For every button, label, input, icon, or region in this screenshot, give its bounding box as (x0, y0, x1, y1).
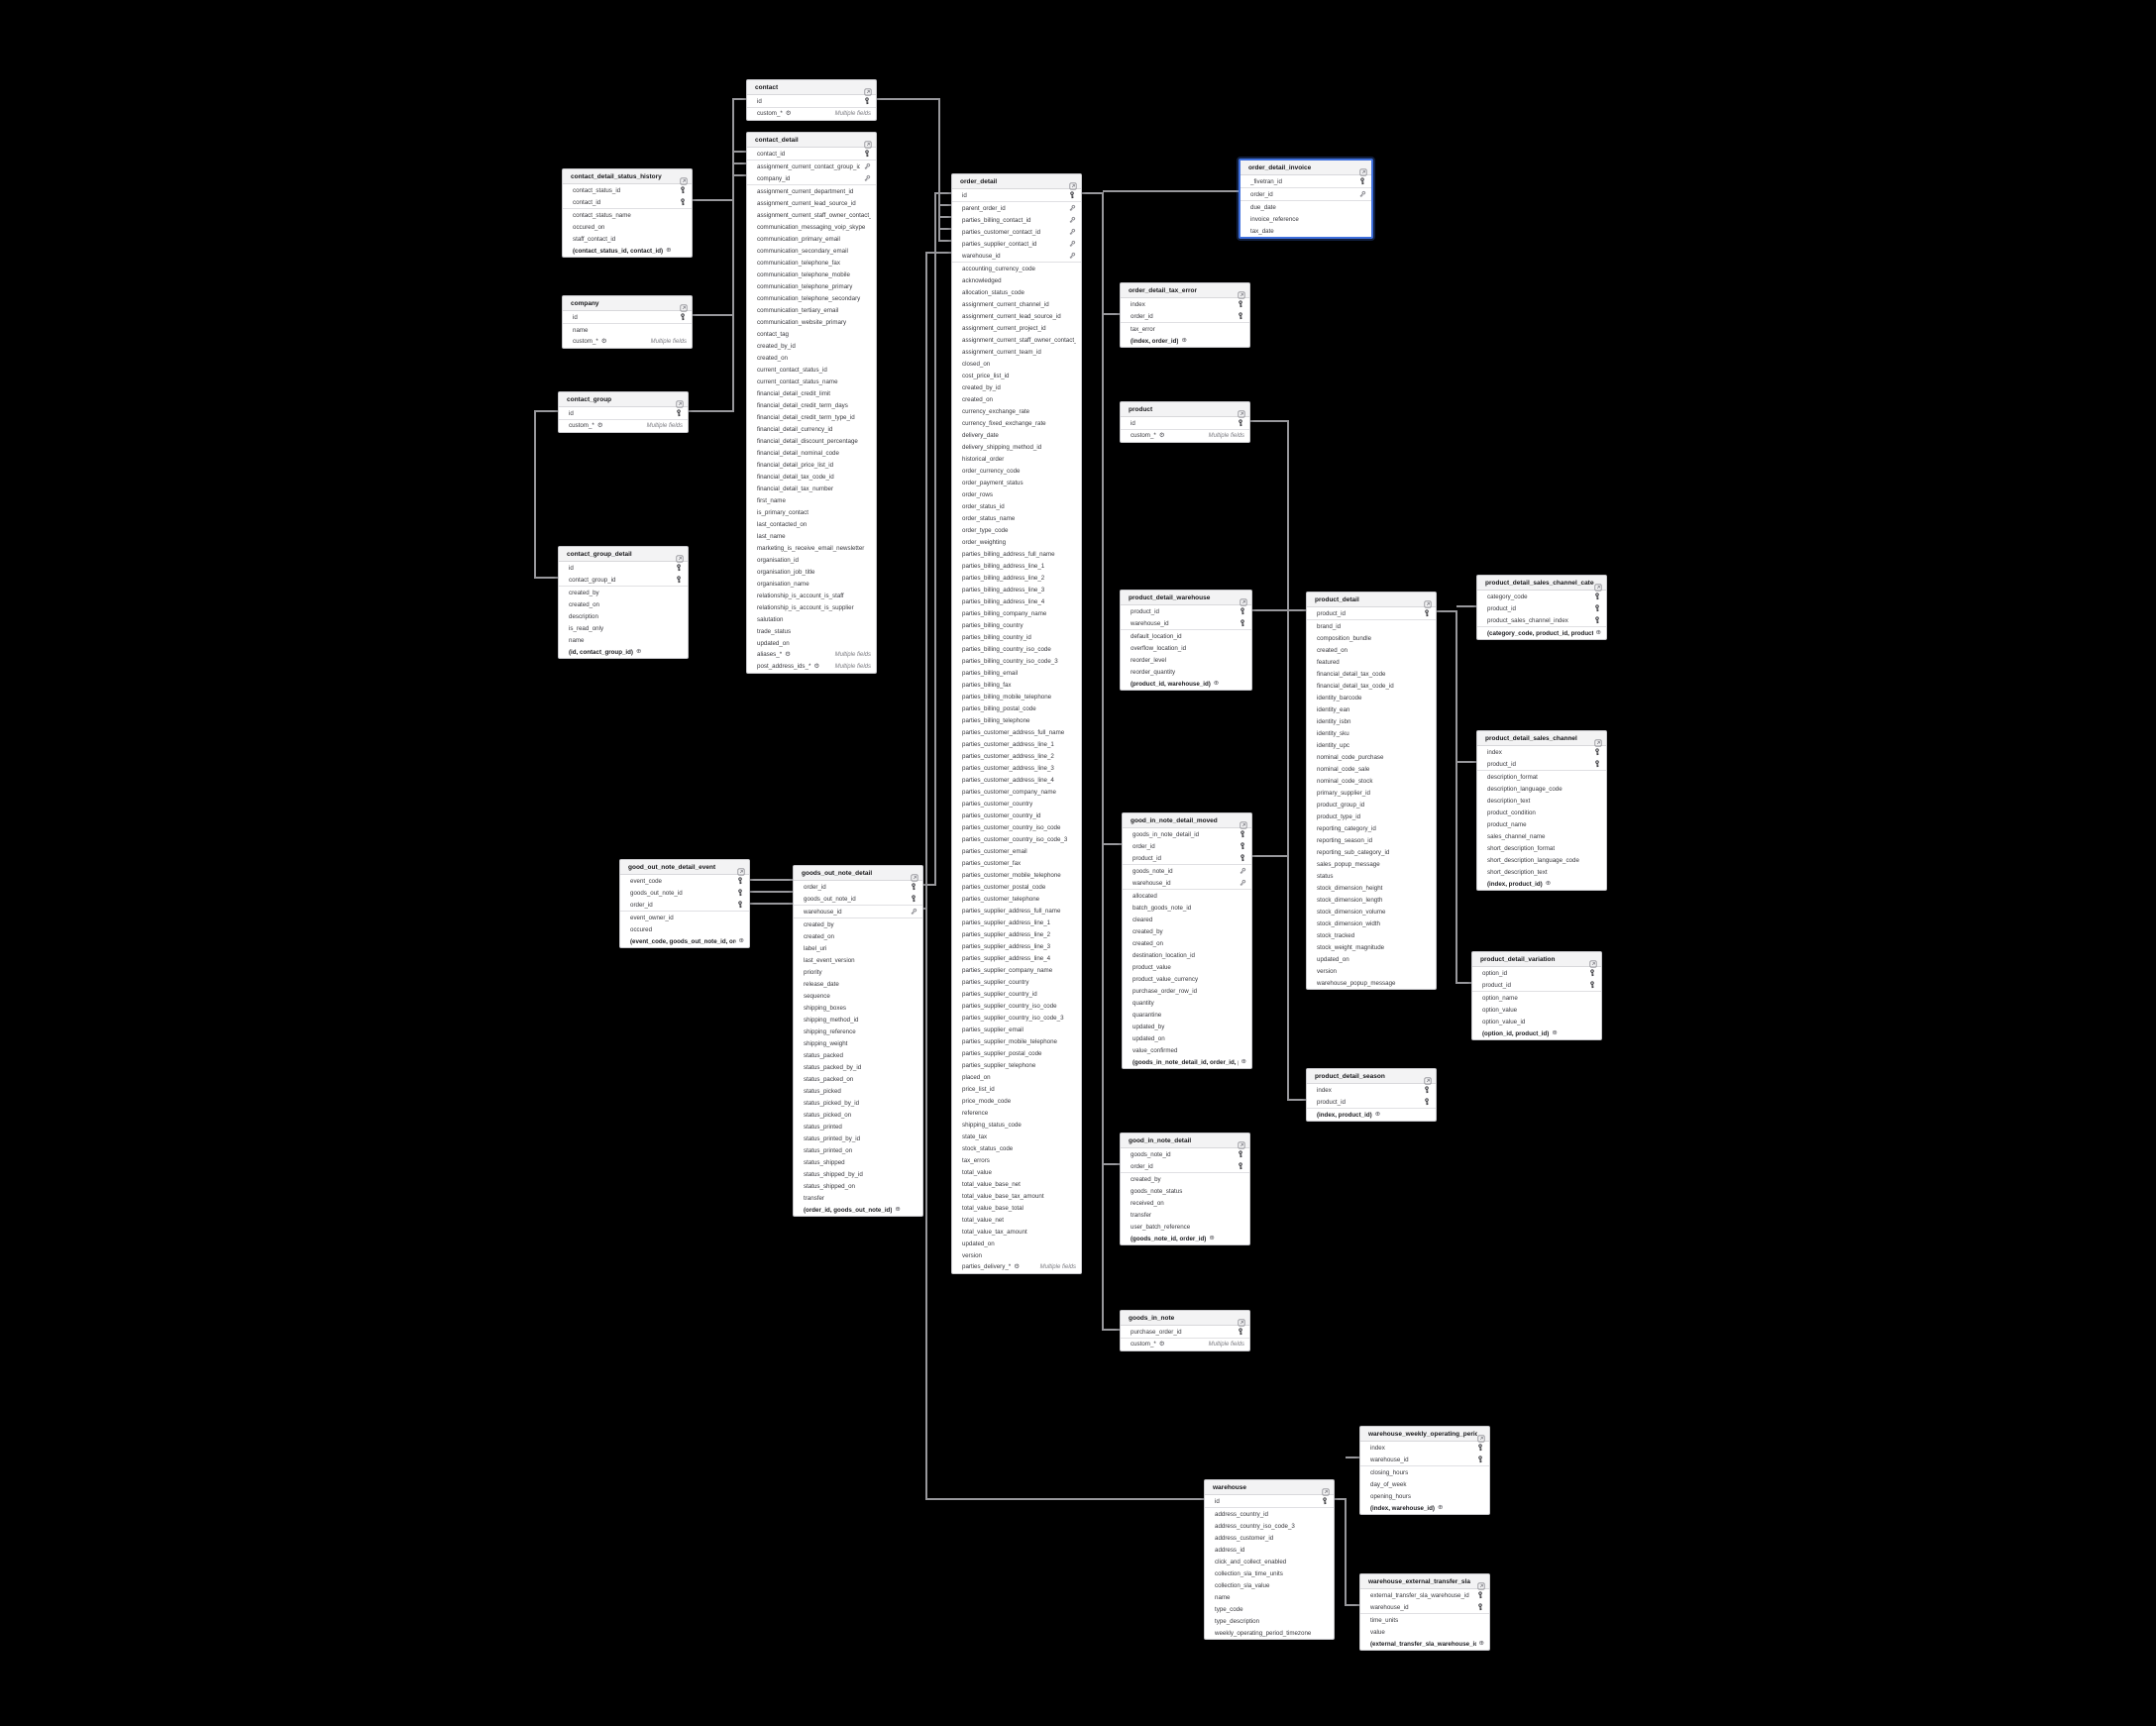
field-name: parties_billing_address_line_3 (962, 587, 1076, 593)
table-header[interactable]: product_detail_sales_channel (1477, 731, 1606, 746)
field-name: price_list_id (962, 1086, 1076, 1093)
field-name: total_value_base_total (962, 1205, 1076, 1212)
field-row: tax_error (1121, 323, 1249, 335)
field-row: parties_billing_address_line_1 (952, 560, 1081, 572)
field-name: communication_website_primary (757, 319, 871, 326)
table-good_in_note_detail[interactable]: good_in_note_detailgoods_note_idorder_id… (1120, 1133, 1250, 1245)
field-name: allocated (1132, 893, 1246, 900)
table-title: product_detail_variation (1480, 956, 1589, 963)
field-row: warehouse_id (952, 250, 1081, 263)
field-row: identity_sku (1307, 727, 1436, 739)
field-row: short_description_language_code (1477, 854, 1606, 866)
field-row: stock_weight_magnitude (1307, 941, 1436, 953)
field-name: financial_detail_price_list_id (757, 462, 871, 469)
table-header[interactable]: order_detail_invoice (1240, 161, 1371, 175)
field-name: parties_customer_country (962, 801, 1076, 808)
field-name: parties_customer_postal_code (962, 884, 1076, 891)
field-name: order_weighting (962, 539, 1076, 546)
field-row: (external_transfer_sla_warehouse_id, ...… (1360, 1638, 1489, 1650)
field-row: created_by_id (952, 381, 1081, 393)
field-name: composition_bundle (1317, 635, 1431, 642)
field-name: created_by_id (757, 343, 871, 350)
field-row: option_value (1472, 1004, 1601, 1016)
field-name: shipping_weight (804, 1040, 917, 1047)
table-product_detail_season[interactable]: product_detail_seasonindexproduct_id(ind… (1306, 1068, 1437, 1122)
expand-table-icon[interactable] (1069, 177, 1077, 185)
field-row: parties_billing_contact_id (952, 214, 1081, 226)
table-title: good_out_note_detail_event (628, 864, 737, 871)
field-name: overflow_location_id (1131, 645, 1246, 652)
field-name: stock_dimension_height (1317, 885, 1431, 892)
expand-table-icon[interactable] (1240, 816, 1247, 824)
field-row: organisation_job_title (747, 566, 876, 578)
table-product_detail_warehouse[interactable]: product_detail_warehouseproduct_idwareho… (1120, 590, 1252, 691)
field-row: parties_customer_address_line_1 (952, 738, 1081, 750)
field-row: quantity (1123, 997, 1251, 1009)
expand-table-icon[interactable] (1477, 1430, 1485, 1438)
field-row: closing_hours (1360, 1466, 1489, 1478)
field-row: (option_id, product_id)⊕ (1472, 1027, 1601, 1039)
primary-key-icon (910, 883, 917, 891)
field-row: parties_customer_address_full_name (952, 726, 1081, 738)
field-name: (contact_status_id, contact_id) (573, 248, 663, 255)
field-row: post_address_ids_*⚙Multiple fields (747, 661, 876, 673)
field-name: assignment_current_department_id (757, 188, 871, 195)
table-product_detail[interactable]: product_detailproduct_idbrand_idcomposit… (1306, 592, 1437, 990)
field-row: value_confirmed (1123, 1044, 1251, 1056)
field-name: product_group_id (1317, 802, 1431, 809)
field-name: reporting_category_id (1317, 825, 1431, 832)
table-header[interactable]: product_detail_sales_channel_category (1477, 576, 1606, 591)
field-row: product_id (1121, 605, 1251, 617)
field-row: warehouse_id (1123, 877, 1251, 890)
field-name: priority (804, 969, 917, 976)
table-header[interactable]: product_detail_season (1307, 1069, 1436, 1084)
field-name: currency_exchange_rate (962, 408, 1076, 415)
diagram-canvas[interactable]: contactidcustom_*⚙Multiple fieldscontact… (0, 0, 2156, 1726)
table-header[interactable]: product_detail (1307, 593, 1436, 607)
field-row: parties_supplier_postal_code (952, 1047, 1081, 1059)
field-row: brand_id (1307, 620, 1436, 632)
field-name: brand_id (1317, 623, 1431, 630)
field-row: financial_detail_tax_code_id (1307, 680, 1436, 692)
field-name: stock_dimension_width (1317, 920, 1431, 927)
table-header[interactable]: product_detail_warehouse (1121, 591, 1251, 605)
field-name: parties_customer_address_full_name (962, 729, 1076, 736)
field-row: short_description_format (1477, 842, 1606, 854)
field-name: parties_supplier_country_iso_code_3 (962, 1015, 1076, 1022)
field-row: address_customer_id (1205, 1532, 1334, 1544)
expand-table-icon[interactable] (1238, 1136, 1245, 1144)
expand-table-icon[interactable] (1359, 163, 1367, 171)
field-row: parties_billing_email (952, 667, 1081, 679)
field-name: batch_goods_note_id (1132, 905, 1246, 912)
field-row: click_and_collect_enabled (1205, 1556, 1334, 1567)
field-name: identity_upc (1317, 742, 1431, 749)
field-name: delivery_shipping_method_id (962, 444, 1076, 451)
primary-key-icon (736, 877, 744, 885)
field-row: parties_customer_contact_id (952, 226, 1081, 238)
field-name: status_picked (804, 1088, 917, 1095)
field-row: custom_*⚙Multiple fields (1121, 430, 1249, 442)
table-order_detail_tax_error[interactable]: order_detail_tax_errorindexorder_idtax_e… (1120, 282, 1250, 348)
field-row: parties_customer_address_line_2 (952, 750, 1081, 762)
field-name: stock_tracked (1317, 932, 1431, 939)
field-row: id (1121, 417, 1249, 430)
table-company[interactable]: companyidnamecustom_*⚙Multiple fields (562, 295, 693, 349)
field-row: parties_billing_address_line_4 (952, 595, 1081, 607)
foreign-key-icon (863, 174, 871, 182)
table-header[interactable]: warehouse (1205, 1480, 1334, 1495)
table-good_out_note_detail_event[interactable]: good_out_note_detail_eventevent_codegood… (619, 859, 750, 948)
table-header[interactable]: contact_group (559, 392, 688, 407)
primary-key-icon (1237, 312, 1244, 320)
field-name: value_confirmed (1132, 1047, 1246, 1054)
field-row: shipping_boxes (794, 1002, 922, 1014)
field-row: created_on (747, 352, 876, 364)
field-name: parties_supplier_country_id (962, 991, 1076, 998)
index-icon: ⊕ (1438, 1505, 1443, 1512)
field-row: identity_barcode (1307, 692, 1436, 703)
foreign-key-icon (1068, 204, 1076, 212)
field-row: created_on (1123, 937, 1251, 949)
table-goods_in_note[interactable]: goods_in_notepurchase_order_idcustom_*⚙M… (1120, 1310, 1250, 1351)
field-row: communication_secondary_email (747, 245, 876, 257)
field-row: event_owner_id (620, 912, 749, 923)
field-name: contact_id (573, 199, 676, 206)
field-name: parties_billing_address_line_2 (962, 575, 1076, 582)
expand-table-icon[interactable] (737, 863, 745, 871)
field-row: allocation_status_code (952, 286, 1081, 298)
expand-table-icon[interactable] (864, 136, 872, 144)
field-name: status_shipped (804, 1159, 917, 1166)
field-row: product_id (1472, 979, 1601, 992)
field-name: address_country_iso_code_3 (1215, 1523, 1329, 1530)
table-warehouse_weekly_operating_period[interactable]: warehouse_weekly_operating_periodindexwa… (1359, 1426, 1490, 1515)
field-row: contact_status_name (563, 209, 692, 221)
table-header[interactable]: good_out_note_detail_event (620, 860, 749, 875)
field-row: tax_date (1240, 225, 1371, 237)
field-row: (goods_note_id, order_id)⊕ (1121, 1233, 1249, 1244)
field-row: product_id (1307, 1096, 1436, 1109)
field-row: parties_supplier_email (952, 1024, 1081, 1035)
table-title: product_detail_sales_channel (1485, 735, 1594, 742)
index-icon: ⊕ (1214, 681, 1219, 688)
field-row: stock_tracked (1307, 929, 1436, 941)
field-row: parties_supplier_country_iso_code_3 (952, 1012, 1081, 1024)
table-header[interactable]: good_in_note_detail (1121, 1133, 1249, 1148)
field-row: index (1307, 1084, 1436, 1096)
field-row: communication_telephone_primary (747, 280, 876, 292)
table-title: order_detail_tax_error (1129, 287, 1238, 294)
table-header[interactable]: contact_group_detail (559, 547, 688, 562)
field-name: total_value_net (962, 1217, 1076, 1224)
field-name: state_tax (962, 1133, 1076, 1140)
gear-icon: ⚙ (786, 110, 792, 117)
table-contact_group[interactable]: contact_groupidcustom_*⚙Multiple fields (558, 391, 689, 433)
field-name: parties_customer_mobile_telephone (962, 872, 1076, 879)
field-name: assignment_current_staff_owner_contact_i… (962, 337, 1076, 344)
expand-table-icon[interactable] (1594, 579, 1602, 587)
table-warehouse_external_transfer_sla[interactable]: warehouse_external_transfer_slaexternal_… (1359, 1573, 1490, 1651)
table-header[interactable]: order_detail_tax_error (1121, 283, 1249, 298)
primary-key-icon (1588, 981, 1596, 989)
table-header[interactable]: goods_in_note (1121, 1311, 1249, 1326)
field-name: parties_customer_contact_id (962, 229, 1065, 236)
table-header[interactable]: contact (747, 80, 876, 95)
table-order_detail[interactable]: order_detailidparent_order_idparties_bil… (951, 173, 1082, 1274)
field-row: last_name (747, 530, 876, 542)
primary-key-icon (679, 313, 687, 321)
field-row: communication_telephone_fax (747, 257, 876, 269)
field-name: order_id (1132, 843, 1236, 850)
field-name: index (1317, 1087, 1420, 1094)
expand-table-icon[interactable] (680, 172, 688, 180)
field-row: identity_isbn (1307, 715, 1436, 727)
field-row: assignment_current_lead_source_id (952, 310, 1081, 322)
field-name: communication_telephone_mobile (757, 271, 871, 278)
table-header[interactable]: company (563, 296, 692, 311)
field-row: version (952, 1249, 1081, 1261)
table-header[interactable]: product_detail_variation (1472, 952, 1601, 967)
field-row: parties_customer_postal_code (952, 881, 1081, 893)
field-name: user_batch_reference (1131, 1224, 1244, 1231)
field-name: created_on (757, 355, 871, 362)
field-name: category_code (1487, 593, 1590, 600)
expand-table-icon[interactable] (1594, 734, 1602, 742)
field-row: is_read_only (559, 622, 688, 634)
expand-table-icon[interactable] (1589, 955, 1597, 963)
field-name: (index, order_id) (1131, 338, 1178, 345)
field-row: financial_detail_discount_percentage (747, 435, 876, 447)
field-name: parties_billing_address_line_4 (962, 598, 1076, 605)
primary-key-icon (1593, 604, 1601, 612)
field-row: stock_dimension_volume (1307, 906, 1436, 917)
table-title: product_detail_sales_channel_category (1485, 580, 1594, 587)
table-header[interactable]: goods_out_note_detail (794, 866, 922, 881)
field-row: category_code (1477, 591, 1606, 602)
field-row: reorder_quantity (1121, 666, 1251, 678)
field-name: type_description (1215, 1618, 1329, 1625)
expand-table-icon[interactable] (1238, 286, 1245, 294)
field-name: option_value (1482, 1007, 1596, 1014)
field-row: currency_exchange_rate (952, 405, 1081, 417)
field-name: warehouse_id (1370, 1604, 1473, 1611)
field-name: marketing_is_receive_email_newsletter (757, 545, 871, 552)
field-name: financial_detail_tax_code_id (757, 474, 871, 481)
field-name: option_id (1482, 970, 1585, 977)
field-name: status_picked_on (804, 1112, 917, 1119)
table-title: goods_in_note (1129, 1315, 1238, 1322)
field-row: financial_detail_price_list_id (747, 459, 876, 471)
field-row: acknowledged (952, 274, 1081, 286)
field-row: goods_in_note_detail_id (1123, 828, 1251, 840)
table-product[interactable]: productidcustom_*⚙Multiple fields (1120, 401, 1250, 443)
field-name: currency_fixed_exchange_rate (962, 420, 1076, 427)
index-icon: ⊕ (1375, 1112, 1380, 1119)
field-name: order_status_id (962, 503, 1076, 510)
table-header[interactable]: order_detail (952, 174, 1081, 189)
primary-key-icon (679, 198, 687, 206)
field-name: received_on (1131, 1200, 1244, 1207)
field-row: marketing_is_receive_email_newsletter (747, 542, 876, 554)
field-row: organisation_name (747, 578, 876, 590)
field-name: goods_note_id (1131, 1151, 1234, 1158)
table-title: goods_out_note_detail (802, 870, 911, 877)
field-name: created_on (569, 601, 683, 608)
primary-key-icon (1237, 1162, 1244, 1170)
field-name: order_id (1131, 1163, 1234, 1170)
primary-key-icon (1237, 300, 1244, 308)
table-header[interactable]: warehouse_external_transfer_sla (1360, 1574, 1489, 1589)
relationship-line (1331, 1499, 1359, 1605)
field-row: state_tax (952, 1131, 1081, 1142)
expand-table-icon[interactable] (1322, 1483, 1330, 1491)
table-contact[interactable]: contactidcustom_*⚙Multiple fields (746, 79, 877, 121)
field-name: warehouse_id (1131, 620, 1236, 627)
table-header[interactable]: contact_detail_status_history (563, 169, 692, 184)
field-row: organisation_id (747, 554, 876, 566)
expand-table-icon[interactable] (911, 869, 918, 877)
expand-table-icon[interactable] (1238, 405, 1245, 413)
multiple-fields-label: Multiple fields (647, 423, 683, 429)
expand-table-icon[interactable] (1240, 593, 1247, 601)
field-name: organisation_name (757, 581, 871, 588)
field-name: first_name (757, 497, 871, 504)
index-icon: ⊕ (666, 248, 671, 255)
table-product_detail_variation[interactable]: product_detail_variationoption_idproduct… (1471, 951, 1602, 1040)
field-name: product_id (1132, 855, 1236, 862)
field-row: opening_hours (1360, 1490, 1489, 1502)
field-row: product_id (1307, 607, 1436, 620)
field-row: index (1121, 298, 1249, 310)
expand-table-icon[interactable] (1424, 595, 1432, 603)
field-row: name (1205, 1591, 1334, 1603)
field-row: address_id (1205, 1544, 1334, 1556)
field-name: product_type_id (1317, 813, 1431, 820)
field-name: description_format (1487, 774, 1601, 781)
field-row: purchase_order_row_id (1123, 985, 1251, 997)
gear-icon: ⚙ (1159, 432, 1165, 439)
field-row: assignment_current_staff_owner_contact_i… (952, 334, 1081, 346)
expand-table-icon[interactable] (1477, 1577, 1485, 1585)
field-row: description_language_code (1477, 783, 1606, 795)
field-name: event_owner_id (630, 915, 744, 921)
field-row: (goods_in_note_detail_id, order_id, pro.… (1123, 1056, 1251, 1068)
multiple-fields-label: Multiple fields (835, 664, 871, 670)
field-name: status (1317, 873, 1431, 880)
table-header[interactable]: warehouse_weekly_operating_period (1360, 1427, 1489, 1442)
field-row: communication_tertiary_email (747, 304, 876, 316)
primary-key-icon (675, 576, 683, 584)
table-goods_out_note_detail[interactable]: goods_out_note_detailorder_idgoods_out_n… (793, 865, 923, 1217)
field-name: nominal_code_stock (1317, 778, 1431, 785)
field-row: created_on (559, 598, 688, 610)
field-row: featured (1307, 656, 1436, 668)
table-header[interactable]: good_in_note_detail_moved (1123, 813, 1251, 828)
field-name: status_printed_by_id (804, 1135, 917, 1142)
field-name: custom_*⚙ (1131, 1341, 1209, 1348)
field-name: financial_detail_discount_percentage (757, 438, 871, 445)
field-name: cost_price_list_id (962, 373, 1076, 379)
table-product_detail_sales_channel_category[interactable]: product_detail_sales_channel_categorycat… (1476, 575, 1607, 640)
expand-table-icon[interactable] (676, 550, 684, 558)
field-name: contact_status_name (573, 212, 687, 219)
field-name: purchase_order_id (1131, 1329, 1234, 1336)
field-name: sales_popup_message (1317, 861, 1431, 868)
field-name: destination_location_id (1132, 952, 1246, 959)
table-header[interactable]: product (1121, 402, 1249, 417)
expand-table-icon[interactable] (1424, 1072, 1432, 1080)
field-name: communication_telephone_fax (757, 260, 871, 267)
field-row: transfer (794, 1192, 922, 1204)
table-contact_group_detail[interactable]: contact_group_detailidcontact_group_idcr… (558, 546, 689, 659)
field-name: description (569, 613, 683, 620)
field-name: identity_isbn (1317, 718, 1431, 725)
field-row: _fivetran_id (1240, 175, 1371, 188)
field-row: parties_delivery_*⚙Multiple fields (952, 1261, 1081, 1273)
field-row: product_value (1123, 961, 1251, 973)
primary-key-icon (1237, 1150, 1244, 1158)
table-product_detail_sales_channel[interactable]: product_detail_sales_channelindexproduct… (1476, 730, 1607, 891)
field-row: status_printed (794, 1121, 922, 1133)
table-order_detail_invoice[interactable]: order_detail_invoice_fivetran_idorder_id… (1239, 159, 1373, 239)
field-name: (goods_note_id, order_id) (1131, 1236, 1206, 1242)
expand-table-icon[interactable] (676, 395, 684, 403)
field-name: created_on (1132, 940, 1246, 947)
field-row: (contact_status_id, contact_id)⊕ (563, 245, 692, 257)
expand-table-icon[interactable] (680, 299, 688, 307)
field-name: goods_in_note_detail_id (1132, 831, 1236, 838)
field-name: custom_*⚙ (569, 422, 647, 430)
table-contact_detail[interactable]: contact_detailcontact_idassignment_curre… (746, 132, 877, 674)
field-name: communication_tertiary_email (757, 307, 871, 314)
field-row: shipping_method_id (794, 1014, 922, 1025)
table-good_in_note_detail_moved[interactable]: good_in_note_detail_movedgoods_in_note_d… (1122, 812, 1252, 1069)
field-row: short_description_text (1477, 866, 1606, 878)
table-header[interactable]: contact_detail (747, 133, 876, 148)
field-name: event_code (630, 878, 733, 885)
field-row: reporting_category_id (1307, 822, 1436, 834)
field-name: created_by (1131, 1176, 1244, 1183)
relationship-line (687, 99, 746, 411)
field-row: created_by (1123, 925, 1251, 937)
field-name: tax_errors (962, 1157, 1076, 1164)
field-row: product_id (1123, 852, 1251, 865)
field-name: contact_id (757, 151, 860, 158)
field-row: id (1205, 1495, 1334, 1508)
field-row: (index, warehouse_id)⊕ (1360, 1502, 1489, 1514)
field-name: closed_on (962, 361, 1076, 368)
field-row: contact_status_id (563, 184, 692, 196)
field-name: status_shipped_on (804, 1183, 917, 1190)
primary-key-icon (736, 901, 744, 909)
field-row: order_id (620, 899, 749, 912)
field-row: price_list_id (952, 1083, 1081, 1095)
expand-table-icon[interactable] (1238, 1314, 1245, 1322)
index-icon: ⊕ (739, 938, 744, 945)
field-row: status_shipped_on (794, 1180, 922, 1192)
field-name: sequence (804, 993, 917, 1000)
field-row: day_of_week (1360, 1478, 1489, 1490)
field-name: tax_date (1250, 228, 1366, 235)
field-name: parties_supplier_address_line_3 (962, 943, 1076, 950)
field-name: order_payment_status (962, 480, 1076, 486)
table-contact_detail_status_history[interactable]: contact_detail_status_historycontact_sta… (562, 168, 693, 258)
expand-table-icon[interactable] (864, 83, 872, 91)
field-row: created_by (559, 587, 688, 598)
table-warehouse[interactable]: warehouseidaddress_country_idaddress_cou… (1204, 1479, 1335, 1640)
